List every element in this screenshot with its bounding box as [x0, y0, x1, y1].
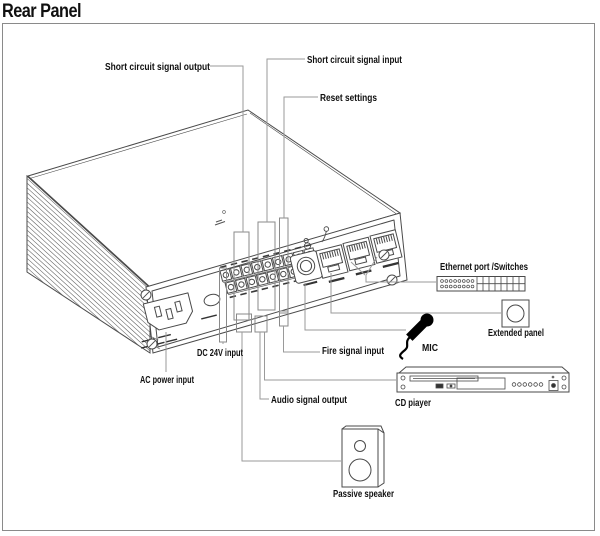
- label-ethernet-port-switches: Ethernet port /Switches: [440, 261, 528, 273]
- label-passive-speaker: Passive speaker: [333, 488, 394, 500]
- label-ac-power-input: AC power input: [140, 374, 194, 386]
- label-reset-settings: Reset settings: [320, 92, 377, 104]
- label-extended-panel: Extended panel: [488, 327, 544, 339]
- screw-icon: [387, 275, 397, 285]
- label-short-circuit-signal-output: Short circuit signal output: [105, 61, 210, 73]
- label-fire-signal-input: Fire signal input: [322, 345, 384, 357]
- page-title: Rear Panel: [2, 1, 81, 22]
- label-dc-24v-input: DC 24V input: [197, 347, 243, 359]
- label-audio-signal-output: Audio signal output: [271, 394, 347, 406]
- rear-panel-diagram: Rear Panel: [0, 0, 600, 536]
- label-short-circuit-signal-input: Short circuit signal input: [307, 54, 402, 66]
- extended-panel-box: [502, 300, 529, 327]
- peripherals: [342, 277, 569, 488]
- cd-player-drawing: [397, 367, 569, 392]
- ethernet-switch-panel: [437, 277, 525, 292]
- label-cd-player: CD piayer: [395, 397, 431, 409]
- screw-icon: [379, 250, 389, 260]
- label-mic: MIC: [422, 342, 438, 354]
- passive-speaker-drawing: [342, 426, 384, 487]
- screw-icon: [147, 339, 157, 349]
- screw-icon: [141, 290, 151, 300]
